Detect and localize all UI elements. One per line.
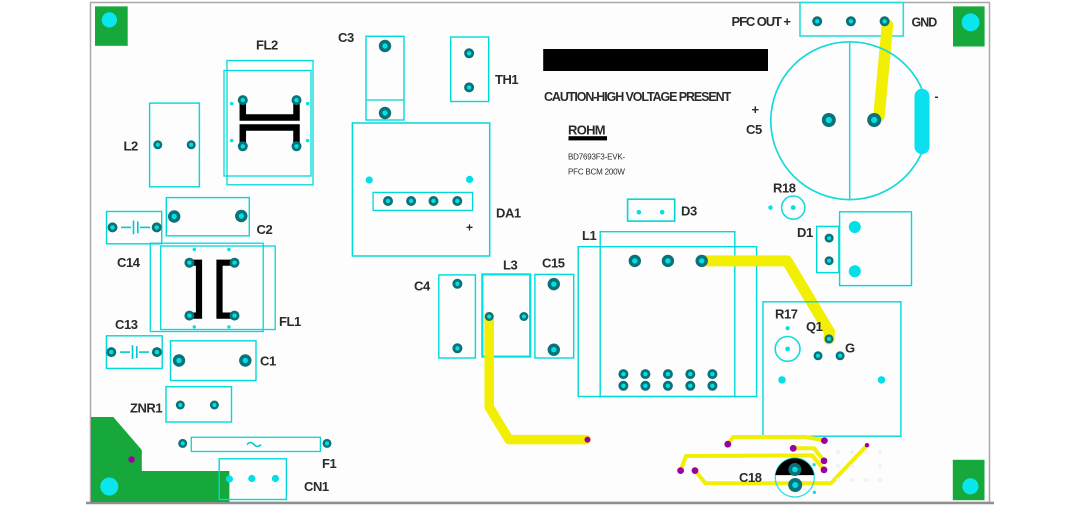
svg-text:+: +: [466, 221, 473, 235]
svg-text:D1: D1: [797, 225, 813, 240]
svg-text:C3: C3: [338, 30, 354, 45]
svg-text:ZNR1: ZNR1: [130, 401, 162, 416]
svg-text:PFC BCM 200W: PFC BCM 200W: [568, 168, 625, 177]
svg-text:F1: F1: [322, 456, 336, 471]
svg-text:C4: C4: [414, 279, 431, 294]
svg-text:CN1: CN1: [304, 479, 329, 494]
svg-text:FL1: FL1: [279, 314, 301, 329]
svg-text:D3: D3: [681, 204, 697, 219]
svg-text:+: +: [752, 102, 760, 117]
svg-text:FL2: FL2: [256, 38, 278, 53]
svg-text:TH1: TH1: [495, 72, 518, 87]
svg-text:-: -: [935, 90, 939, 104]
svg-text:GND: GND: [912, 16, 938, 30]
svg-text:PFC OUT +: PFC OUT +: [732, 14, 792, 29]
svg-text:ROHM: ROHM: [568, 123, 605, 138]
svg-text:L3: L3: [503, 258, 517, 273]
svg-text:CAUTION-HIGH VOLTAGE PRESENT: CAUTION-HIGH VOLTAGE PRESENT: [544, 90, 732, 104]
svg-text:DA1: DA1: [496, 206, 521, 221]
svg-text:C14: C14: [117, 255, 141, 270]
svg-text:C2: C2: [257, 222, 273, 237]
svg-text:R18: R18: [773, 181, 796, 196]
svg-text:C18: C18: [739, 470, 762, 485]
svg-text:C5: C5: [746, 122, 762, 137]
svg-text:C15: C15: [542, 256, 565, 271]
svg-text:G: G: [845, 341, 855, 356]
svg-text:L1: L1: [582, 228, 596, 243]
svg-text:R17: R17: [775, 307, 798, 322]
svg-text:L2: L2: [124, 139, 138, 154]
svg-text:C1: C1: [260, 354, 276, 369]
svg-text:BD7693F3-EVK-: BD7693F3-EVK-: [568, 153, 626, 162]
svg-text:Q1: Q1: [806, 319, 823, 334]
svg-text:C13: C13: [115, 317, 138, 332]
